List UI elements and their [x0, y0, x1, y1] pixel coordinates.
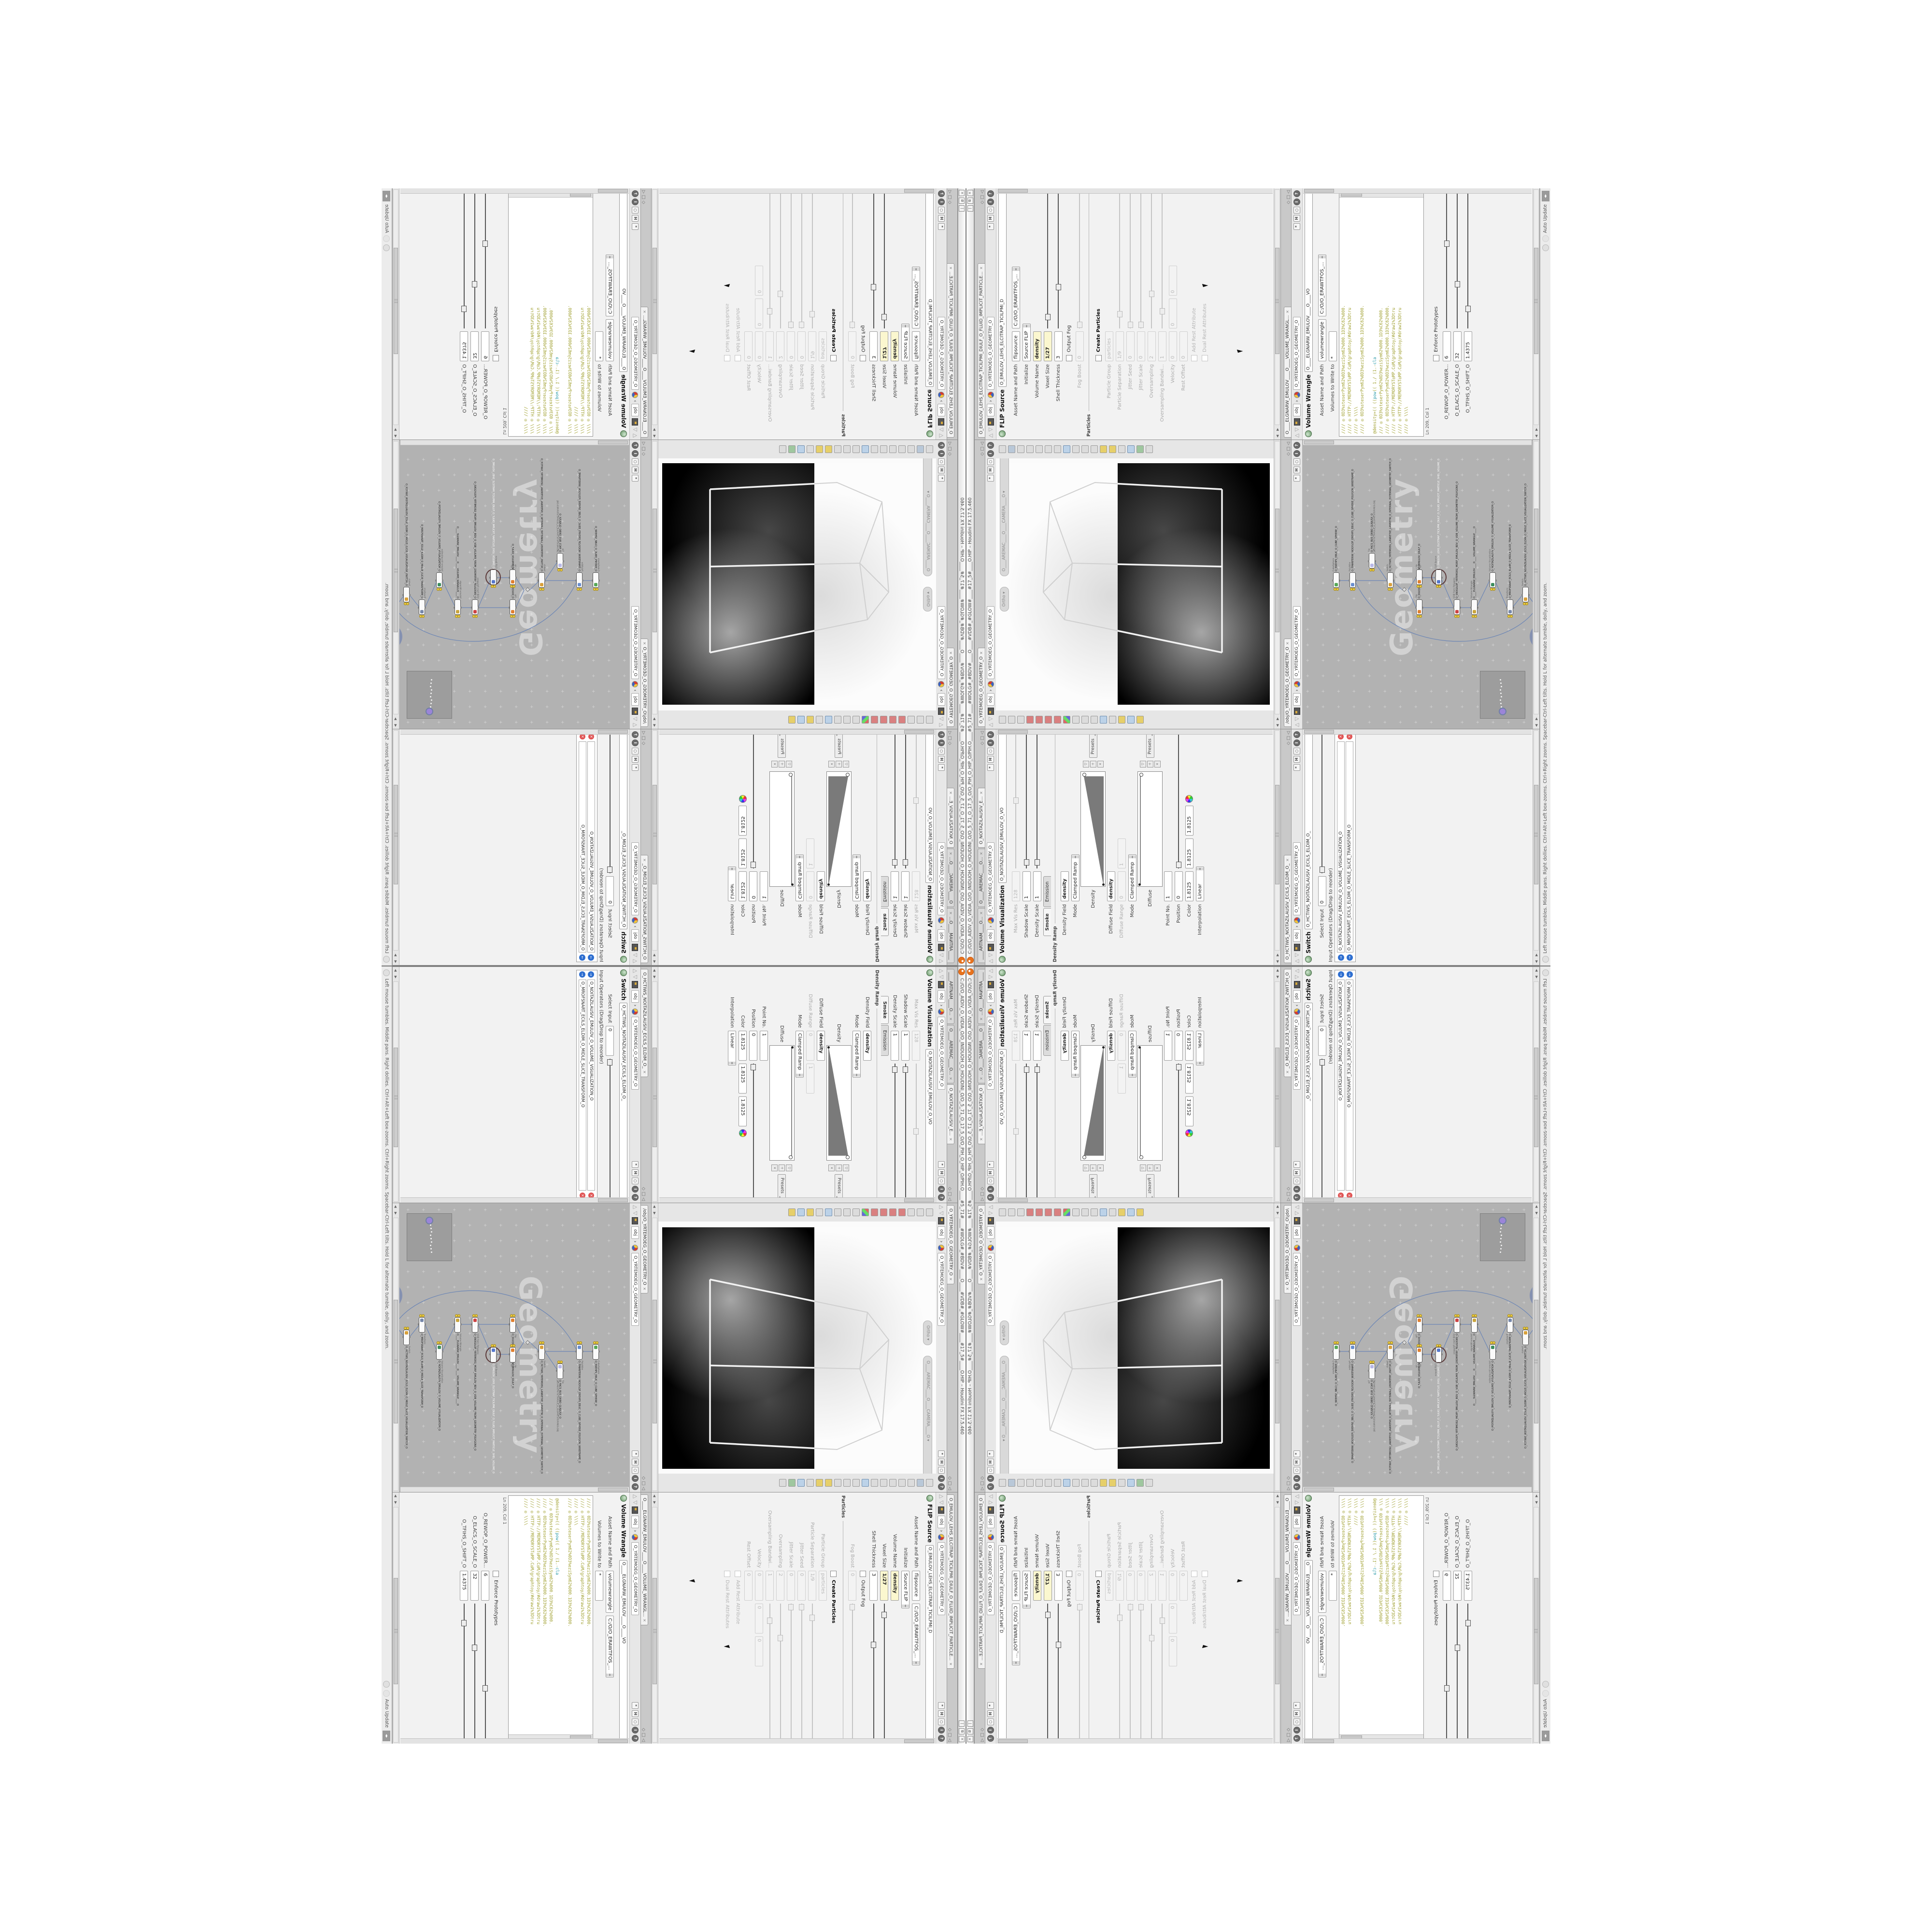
pane-tab[interactable]: O____AREMAC____O...× [978, 849, 985, 907]
hscroll-track[interactable]: ⣿⣿ [1534, 981, 1539, 1202]
pane-tab[interactable]: O____ELGNARW_EMULOV____O____VOLUME_WRANG… [1284, 1494, 1291, 1625]
hscroll-track[interactable]: ⣿⣿ [393, 981, 398, 1202]
param-field[interactable]: 3 [1054, 1571, 1063, 1601]
node-input-stub[interactable] [1521, 594, 1523, 596]
param-field[interactable]: 0 [787, 331, 796, 361]
slider-handle[interactable] [767, 1618, 772, 1624]
info-icon[interactable]: i [632, 450, 639, 457]
node-output-stub[interactable] [1393, 1350, 1395, 1352]
collapse-arrow-icon[interactable] [999, 445, 1006, 453]
nav-forward-icon[interactable]: ▽ [633, 717, 638, 721]
breadcrumb-node[interactable]: O_YRTEMOEG_O_GEOMETRY_O [1293, 606, 1301, 679]
breadcrumb-node[interactable]: O_YRTEMOEG_O_GEOMETRY_O [987, 1017, 994, 1090]
operator-path-field[interactable]: O_NOITAZILAUSIV_EMULOV_O_VOLUME_VISUALIZ… [1337, 741, 1345, 952]
tab-close-icon[interactable]: × [949, 1662, 953, 1666]
breadcrumb-node[interactable]: O_YRTEMOEG_O_GEOMETRY_O [987, 842, 994, 915]
hscroll-left-icon[interactable]: ◀ [653, 1492, 657, 1499]
param-field[interactable]: Clamped Ramp [853, 854, 861, 901]
axis-gizmo-icon[interactable] [862, 1208, 869, 1216]
param-field[interactable]: 1.4375 [460, 331, 469, 361]
breadcrumb-net[interactable]: obj [938, 1516, 945, 1528]
slider-handle[interactable] [788, 1604, 794, 1610]
node-name-field[interactable]: O_NOITAZILAUSIV_EMULOV_O_VO [998, 732, 1007, 883]
select-arrow-icon[interactable] [834, 716, 841, 724]
vex-code-editor[interactable]: //// ◎ 0D3%steserPym62%0D3%eziSym62%000.… [508, 191, 593, 437]
camera-box-icon[interactable] [917, 1479, 924, 1487]
houdini-h-icon[interactable]: H [938, 215, 945, 222]
ramp-point-start[interactable] [1138, 1046, 1141, 1049]
network-overview-map[interactable] [1480, 671, 1525, 719]
search-icon[interactable]: ○ [938, 458, 945, 465]
node-input-stub[interactable] [442, 1350, 444, 1352]
param-field[interactable]: 0 [787, 1571, 796, 1601]
hscroll-right-icon[interactable]: ▶ [394, 426, 398, 433]
node-input-stub[interactable] [478, 1323, 480, 1325]
gear-icon[interactable]: * [938, 764, 945, 771]
pane-split-icon[interactable]: ◇ [641, 1477, 646, 1480]
pane-vscrollbar[interactable] [400, 729, 629, 735]
param-field[interactable]: density [1061, 1031, 1069, 1061]
tab-close-icon[interactable]: × [1285, 1619, 1290, 1622]
pane-vscrollbar[interactable] [400, 1738, 629, 1744]
help-icon[interactable]: ? [938, 190, 945, 197]
pane-hscrollbar[interactable]: ◀▶⣿⣿ [1274, 1492, 1280, 1744]
info-icon[interactable]: i [987, 1186, 994, 1193]
ramp-flip-icon[interactable]: ▽ [1140, 1165, 1146, 1171]
breadcrumb-net[interactable]: obj [987, 990, 994, 1003]
param-field[interactable]: 1 [1164, 1031, 1172, 1061]
pane-tab[interactable]: O_NOITAZILAUSIV_E...× [978, 1084, 985, 1144]
param-field[interactable]: 0 [807, 1031, 815, 1061]
person-view-icon[interactable] [843, 445, 851, 453]
texture-box-icon[interactable] [1127, 445, 1135, 453]
points-toggle-icon[interactable] [1100, 716, 1107, 724]
breadcrumb-net[interactable]: obj [631, 1226, 639, 1239]
param-field[interactable]: 1/9 [1116, 1571, 1124, 1601]
search-icon[interactable]: ○ [632, 458, 639, 465]
network-vscrollbar[interactable] [1303, 1487, 1532, 1492]
hscroll-thumb[interactable]: ⣿⣿ [653, 785, 657, 884]
param-slider[interactable] [1178, 734, 1179, 868]
node-input-stub[interactable] [497, 577, 498, 579]
search-icon[interactable]: ○ [1293, 1467, 1300, 1474]
slider-handle[interactable] [778, 1635, 783, 1641]
corner-grip[interactable]: ◂▸ [1542, 1731, 1549, 1741]
slider-handle[interactable] [881, 314, 887, 320]
node-output-stub[interactable] [1442, 1353, 1443, 1355]
hscroll-track[interactable]: ⣿⣿ [652, 730, 657, 951]
pane-split-icon[interactable]: ◇ [641, 741, 646, 745]
ramp-point-end[interactable] [789, 773, 793, 777]
pane-maximize-icon[interactable]: □ [947, 1481, 952, 1486]
param-slider[interactable] [905, 1064, 906, 1198]
select-arrow-icon[interactable] [1091, 1208, 1098, 1216]
pane-maximize-icon[interactable]: □ [947, 1192, 952, 1196]
param-field[interactable]: 1.8125 [739, 806, 747, 836]
network-node[interactable] [472, 1317, 478, 1333]
ramp-point-start[interactable] [1102, 1046, 1105, 1049]
checkbox-output-fog[interactable] [1066, 355, 1072, 361]
moon-toggle-icon[interactable] [1118, 445, 1125, 453]
ortho-view-pill[interactable]: Ortho ▾ [1000, 587, 1009, 611]
pane-tab[interactable]: O____AREMAC____O...× [947, 849, 954, 907]
pane-hscrollbar[interactable]: ◀▶⣿⣿ [652, 967, 658, 1203]
info-icon[interactable]: i [938, 199, 945, 205]
hscroll-left-icon[interactable]: ◀ [1276, 967, 1279, 974]
param-field[interactable]: 1.4375 [460, 1571, 469, 1601]
node-input-stub[interactable] [1435, 577, 1436, 579]
param-field[interactable]: density [1033, 331, 1041, 361]
hscroll-thumb[interactable]: ⣿⣿ [394, 248, 398, 355]
pane-vscrollbar[interactable] [659, 1197, 935, 1203]
vscroll-thumb[interactable] [904, 1739, 934, 1743]
grid-toggle-icon[interactable] [898, 1479, 906, 1487]
slider-handle[interactable] [1045, 314, 1051, 320]
search-icon[interactable]: ○ [1293, 748, 1300, 754]
hscroll-left-icon[interactable]: ◀ [394, 1203, 398, 1210]
node-name-field[interactable]: O_HCTIWS_NOITAZILAUSIV_ECILS_ELDIM_O_ [620, 732, 628, 929]
origin-toggle-icon[interactable] [1091, 1479, 1098, 1487]
cursor-tool-icon[interactable] [1109, 1208, 1116, 1216]
pane-vscrollbar[interactable] [997, 1738, 1273, 1744]
hscroll-left-icon[interactable]: ◀ [394, 1492, 398, 1499]
slider-handle[interactable] [850, 1604, 855, 1610]
help-icon[interactable]: ? [632, 731, 639, 738]
pane-maximize-icon[interactable]: □ [947, 195, 952, 199]
pane-hscrollbar[interactable]: ◀▶⣿⣿ [393, 1492, 399, 1744]
nav-back-icon[interactable]: △ [939, 969, 944, 973]
hscroll-left-icon[interactable]: ◀ [1534, 433, 1538, 440]
houdini-h-icon[interactable]: H [632, 756, 639, 763]
houdini-h-icon[interactable]: H [1293, 467, 1300, 473]
camera-select-pill[interactable]: O____AREMAC____O____CAMERA____O ▾ [1000, 1356, 1009, 1474]
hscroll-track[interactable]: ⣿⣿ [652, 189, 657, 425]
tab-close-icon[interactable]: × [979, 1662, 983, 1666]
tab-close-icon[interactable]: × [949, 791, 953, 795]
pane-hscrollbar[interactable]: ◀▶⣿⣿ [1274, 967, 1280, 1203]
refresh-icon[interactable] [384, 235, 390, 242]
slider-handle[interactable] [1149, 291, 1154, 297]
param-slider[interactable] [1321, 734, 1322, 873]
operator-path-field[interactable]: O_MROFSNART_ECILS_ELDIM_O_MIDLE_SLICE_TR… [1346, 741, 1353, 952]
param-slider[interactable] [474, 1604, 475, 1739]
node-output-stub[interactable] [489, 577, 491, 579]
param-slider[interactable] [474, 193, 475, 328]
hscroll-right-icon[interactable]: ▶ [394, 974, 398, 980]
pane-tab[interactable]: O_YRTEMOEG_O_GEOMETRY_O× [947, 648, 954, 727]
param-field[interactable]: volumewrangle [1318, 1571, 1326, 1613]
nav-back-icon[interactable]: △ [1294, 969, 1299, 973]
param-field[interactable]: 1 [1164, 871, 1172, 901]
param-field[interactable]: 0 [755, 1571, 764, 1601]
param-field[interactable]: 0 [1169, 266, 1177, 296]
param-slider[interactable] [1457, 1604, 1458, 1739]
param-field[interactable]: Source FLIP [1023, 324, 1031, 361]
tab-close-icon[interactable]: × [979, 911, 983, 915]
param-field[interactable]: 3 [1054, 331, 1063, 361]
pane-collapse-icon[interactable]: ◁ [947, 731, 952, 735]
node-output-stub[interactable] [556, 1370, 557, 1372]
breadcrumb-node[interactable]: O_YRTEMOEG_O_GEOMETRY_O [938, 606, 945, 679]
operator-path-field[interactable]: O_NOITAZILAUSIV_EMULOV_O_VOLUME_VISUALIZ… [587, 741, 595, 952]
ramp-point-end[interactable] [1139, 773, 1143, 777]
breadcrumb-node[interactable]: O_YRTEMOEG_O_GEOMETRY_O [631, 1542, 639, 1615]
search-icon[interactable]: ○ [1293, 1719, 1300, 1725]
nav-back-icon[interactable]: △ [939, 434, 944, 438]
slider-handle[interactable] [1149, 1635, 1154, 1641]
param-slider[interactable] [753, 1064, 754, 1198]
snap-magnet-grid-icon[interactable] [1054, 1208, 1061, 1216]
pane-collapse-icon[interactable]: ◁ [1286, 731, 1291, 735]
network-vscrollbar[interactable] [1303, 440, 1532, 445]
snap-magnet-3-icon[interactable] [1045, 716, 1052, 724]
param-field[interactable]: density [817, 1031, 825, 1061]
hscroll-left-icon[interactable]: ◀ [653, 433, 657, 440]
param-field[interactable]: density [864, 1031, 872, 1061]
pane-split-icon[interactable]: ◇ [1286, 741, 1291, 745]
ramp-delete-icon[interactable]: × [1097, 761, 1104, 767]
param-field[interactable]: 0 [1318, 876, 1326, 906]
param-field[interactable]: 1.8125 [739, 871, 747, 901]
pane-collapse-icon[interactable]: ◁ [980, 1487, 985, 1490]
axis-gizmo-icon[interactable] [1063, 716, 1070, 724]
param-field[interactable]: 0 [750, 871, 758, 901]
slider-handle[interactable] [903, 859, 908, 866]
hscroll-thumb[interactable]: ⣿⣿ [394, 1048, 398, 1147]
hscroll-thumb[interactable]: ⣿⣿ [1275, 1048, 1279, 1147]
param-field[interactable]: 0 [1318, 1026, 1326, 1056]
hscroll-right-icon[interactable]: ▶ [1276, 952, 1279, 958]
slider-handle[interactable] [1117, 311, 1122, 317]
node-name-field[interactable]: O_EMULOV_LEHS_ELCITRAP_TICILPMI_D [998, 1545, 1007, 1741]
network-node[interactable] [1350, 1344, 1356, 1360]
breadcrumb-node[interactable]: O_YRTEMOEG_O_GEOMETRY_O [987, 606, 994, 679]
param-field[interactable]: 0 [606, 1026, 614, 1056]
color-wheel-icon[interactable] [739, 1129, 747, 1137]
nav-forward-icon[interactable]: ▽ [988, 1500, 993, 1504]
ramp-point-start[interactable] [791, 883, 794, 886]
pose-tool-icon[interactable] [1072, 1208, 1080, 1216]
param-field[interactable]: density [891, 1571, 899, 1601]
color-wheel-icon[interactable] [1185, 1129, 1193, 1137]
nav-forward-icon[interactable]: ▽ [939, 975, 944, 979]
reorder-arrow-icon[interactable]: → [1347, 954, 1353, 961]
checkbox-dual-rest-attributes[interactable] [724, 1571, 731, 1577]
folder-tab-emission[interactable]: Emission [1043, 876, 1051, 907]
node-cook-icon[interactable] [926, 969, 933, 976]
node-output-stub[interactable] [402, 594, 404, 596]
param-field[interactable]: Clamped Ramp [1128, 1031, 1136, 1078]
slider-handle[interactable] [871, 284, 876, 290]
hscroll-right-icon[interactable]: ▶ [1276, 1499, 1279, 1506]
origin-toggle-icon[interactable] [834, 1479, 841, 1487]
param-field[interactable]: 1.8125 [1185, 838, 1193, 868]
nav-back-icon[interactable]: △ [1294, 1205, 1299, 1209]
hscroll-left-icon[interactable]: ◀ [653, 967, 657, 974]
pane-tab[interactable]: O_EMULOV_LEHS_ELCITRAP_TICILPMI_DIULF_O_… [978, 1494, 985, 1669]
node-output-stub[interactable] [556, 560, 557, 562]
tab-close-icon[interactable]: × [949, 1278, 953, 1281]
pane-split-icon[interactable]: ◇ [980, 200, 985, 204]
param-field[interactable]: 0 [755, 298, 764, 328]
network-canvas[interactable]: ++++++++++++++++++++++++++++++++++++++++… [1302, 1203, 1533, 1492]
camera-box-icon[interactable] [917, 445, 924, 453]
nav-back-icon[interactable]: △ [1294, 959, 1299, 963]
node-output-stub[interactable] [471, 607, 472, 609]
breadcrumb-net[interactable]: obj [938, 1226, 945, 1239]
network-node[interactable] [436, 572, 442, 588]
hscroll-thumb[interactable]: ⣿⣿ [1534, 1578, 1538, 1685]
slider-handle[interactable] [1077, 1604, 1082, 1610]
node-output-stub[interactable] [1422, 1323, 1424, 1325]
ramp-flip-icon[interactable]: ▽ [843, 761, 850, 767]
node-output-stub[interactable] [1513, 1323, 1515, 1325]
slider-handle[interactable] [461, 306, 467, 312]
param-field[interactable]: 2 [1148, 331, 1156, 361]
cook-mode-icon[interactable] [384, 244, 390, 251]
pane-vscrollbar[interactable] [1303, 1197, 1532, 1203]
node-name-field[interactable]: O____ELGNARW_EMULOV____O____VO [1305, 1560, 1313, 1741]
nav-forward-icon[interactable]: ▽ [939, 717, 944, 721]
pane-hscrollbar[interactable]: ◀▶⣿⣿ [393, 729, 399, 965]
window-titlebar[interactable]: C:/O/O_AIDIV_O_VIDIA_O/O_INIDUOH_O_HOUDI… [958, 188, 966, 966]
param-field[interactable]: density [1107, 871, 1115, 901]
pane-maximize-icon[interactable]: □ [641, 1733, 646, 1737]
param-field[interactable]: particles [819, 331, 827, 361]
pane-split-icon[interactable]: ◇ [947, 1187, 952, 1191]
moon-toggle-icon[interactable] [807, 1479, 814, 1487]
param-field[interactable]: * [596, 331, 604, 361]
gear-icon[interactable]: * [987, 1161, 994, 1168]
slider-handle[interactable] [1035, 1066, 1040, 1073]
tab-close-icon[interactable]: × [949, 1077, 953, 1080]
network-node[interactable] [1350, 572, 1356, 588]
nav-forward-icon[interactable]: ▽ [633, 427, 638, 431]
param-field[interactable]: Source FLIP [902, 324, 910, 361]
param-field[interactable]: 0 [1118, 1031, 1126, 1061]
gear-icon[interactable]: * [938, 475, 945, 482]
node-input-stub[interactable] [497, 1353, 498, 1355]
node-input-stub[interactable] [516, 607, 517, 609]
slider-handle[interactable] [1056, 284, 1061, 290]
hscroll-left-icon[interactable]: ◀ [1534, 1492, 1538, 1499]
reorder-arrow-icon[interactable]: → [1347, 971, 1353, 978]
camera-select-pill[interactable]: O____AREMAC____O____CAMERA____O ▾ [923, 458, 932, 576]
param-slider[interactable] [485, 193, 486, 328]
list-item[interactable]: →O_MROFSNART_ECILS_ELDIM_O_MIDLE_SLICE_T… [579, 734, 586, 961]
refresh-icon[interactable] [384, 1690, 390, 1697]
node-name-field[interactable]: O_NOITAZILAUSIV_EMULOV_O_VO [998, 1049, 1007, 1200]
reorder-arrow-icon[interactable]: → [1338, 954, 1344, 961]
hscroll-thumb[interactable]: ⣿⣿ [653, 1578, 657, 1685]
snap-magnet-1-icon[interactable] [1026, 1208, 1034, 1216]
lamp-tool-icon[interactable] [816, 445, 823, 453]
nav-forward-icon[interactable]: ▽ [939, 1500, 944, 1504]
node-name-field[interactable]: O____ELGNARW_EMULOV____O____VO [1305, 191, 1313, 372]
param-field[interactable]: 2 [777, 1571, 785, 1601]
points-toggle-icon[interactable] [825, 1208, 832, 1216]
pane-tab[interactable]: O_EMULOV_LEHS_ELCITRAP_TICILPMI_DIULF_O_… [947, 1494, 954, 1669]
vscroll-thumb[interactable] [598, 730, 628, 734]
snap-magnet-grid-icon[interactable] [871, 1208, 878, 1216]
checkbox-create-particles[interactable] [1095, 1571, 1102, 1577]
param-field[interactable]: 0 [755, 266, 764, 296]
param-slider[interactable] [769, 1604, 770, 1739]
refresh-icon[interactable] [1542, 235, 1549, 242]
tab-close-icon[interactable]: × [949, 852, 953, 855]
pane-collapse-icon[interactable]: ◁ [1286, 1197, 1291, 1201]
ramp-delete-icon[interactable]: × [829, 1165, 835, 1171]
nav-back-icon[interactable]: △ [633, 1494, 638, 1498]
param-slider[interactable] [464, 193, 465, 328]
tab-close-icon[interactable]: × [642, 858, 647, 862]
hscroll-left-icon[interactable]: ◀ [653, 1203, 657, 1210]
param-field[interactable]: volumewrangle [606, 319, 614, 361]
pane-tab[interactable]: /obj/O_YRTEMOEG_O_GEOMETRY_O× [1284, 1205, 1291, 1293]
pane-split-icon[interactable]: ◇ [980, 1187, 985, 1191]
param-field[interactable]: 1 [902, 871, 910, 901]
select-box-icon[interactable] [917, 1208, 924, 1216]
search-icon[interactable]: ○ [938, 1719, 945, 1725]
node-output-stub[interactable] [1339, 1350, 1341, 1352]
snap-magnet-grid-icon[interactable] [871, 716, 878, 724]
handle-tool-icon[interactable] [1081, 1208, 1089, 1216]
gear-icon[interactable]: * [938, 223, 945, 230]
pane-collapse-icon[interactable]: ◁ [641, 1487, 646, 1490]
houdini-h-icon[interactable]: H [1293, 1459, 1300, 1465]
tab-close-icon[interactable]: × [642, 310, 647, 313]
pane-tab[interactable]: O_HCTIWS_NOITAZILAUSIV_ECILS_ELDIM_O_× [641, 969, 648, 1077]
checkbox-add-rest-attribute[interactable] [735, 355, 741, 361]
ortho-view-pill[interactable]: Ortho ▾ [923, 587, 932, 611]
param-field[interactable]: 0 [1175, 871, 1183, 901]
snap-magnet-grid-icon[interactable] [1054, 716, 1061, 724]
param-slider[interactable] [1321, 1059, 1322, 1198]
hscroll-track[interactable]: ⣿⣿ [1275, 1218, 1280, 1491]
viewport-hscrollbar[interactable]: ◀▶⣿⣿ [652, 440, 658, 729]
param-slider[interactable] [780, 1604, 781, 1739]
hscroll-thumb[interactable]: ⣿⣿ [394, 1300, 398, 1423]
camera-select-pill[interactable]: O____AREMAC____O____CAMERA____O ▾ [923, 1356, 932, 1474]
hscroll-thumb[interactable]: ⣿⣿ [1534, 248, 1538, 355]
moon-toggle-icon[interactable] [1118, 1479, 1125, 1487]
node-input-stub[interactable] [478, 607, 480, 609]
hscroll-track[interactable]: ⣿⣿ [393, 730, 398, 951]
hscroll-left-icon[interactable]: ◀ [1276, 958, 1279, 965]
zoom-key-icon[interactable] [880, 1479, 887, 1487]
pane-maximize-icon[interactable]: □ [641, 447, 646, 451]
pane-collapse-icon[interactable]: ◁ [641, 1738, 646, 1742]
lasso-tool-icon[interactable] [1118, 1208, 1125, 1216]
param-field[interactable]: 1 [891, 1031, 899, 1061]
info-icon[interactable]: i [938, 1186, 945, 1193]
help-icon[interactable]: ? [987, 731, 994, 738]
pane-hscrollbar[interactable]: ◀▶⣿⣿ [1533, 188, 1539, 440]
hscroll-left-icon[interactable]: ◀ [394, 433, 398, 440]
slider-handle[interactable] [871, 1642, 876, 1648]
node-output-stub[interactable] [1477, 607, 1479, 609]
breadcrumb-node[interactable]: O_YRTEMOEG_O_GEOMETRY_O [938, 842, 945, 915]
network-hscrollbar[interactable]: ◀▶⣿⣿ [393, 440, 399, 729]
vscroll-thumb[interactable] [904, 1198, 934, 1202]
node-cook-icon[interactable] [620, 430, 627, 437]
gear-icon[interactable]: * [1293, 764, 1300, 771]
hscroll-left-icon[interactable]: ◀ [1534, 1203, 1538, 1210]
pane-tab[interactable]: O_HCTIWS_NOITAZILAUSIV_ECILS_ELDIM_O_× [1284, 969, 1291, 1077]
nav-forward-icon[interactable]: ▽ [1294, 975, 1299, 979]
pane-split-icon[interactable]: ◇ [947, 741, 952, 745]
houdini-h-icon[interactable]: H [987, 756, 994, 763]
